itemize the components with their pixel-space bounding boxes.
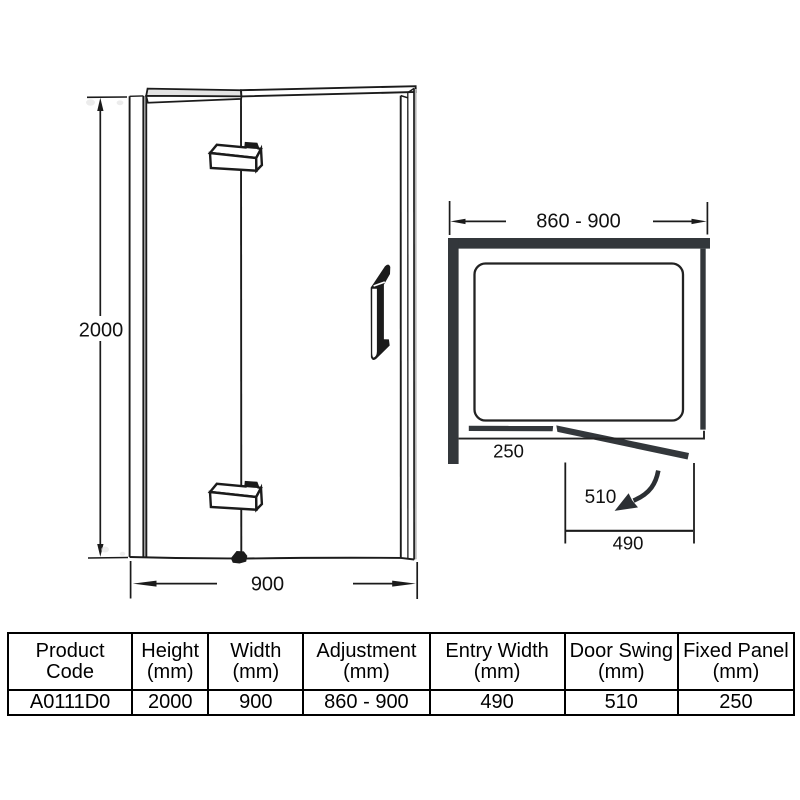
svg-text:510: 510 <box>585 487 617 508</box>
svg-text:860 - 900: 860 - 900 <box>536 211 621 233</box>
svg-text:250: 250 <box>493 441 524 462</box>
svg-text:490: 490 <box>613 533 644 554</box>
svg-text:2000: 2000 <box>79 320 124 342</box>
svg-text:900: 900 <box>251 574 284 596</box>
